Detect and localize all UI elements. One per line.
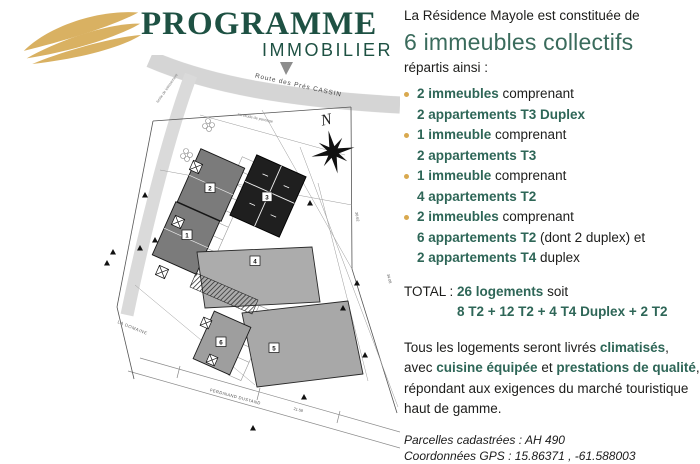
- list-item: 2 appartements T3 Duplex: [404, 105, 696, 126]
- text-segment: 2 appartements T3: [417, 148, 536, 163]
- total-line: TOTAL : 26 logements soit: [404, 282, 696, 302]
- list-item: 2 immeubles comprenant: [404, 84, 696, 105]
- text-segment: (dont 2 duplex) et: [536, 230, 645, 245]
- dimension-label-2: 21.58: [293, 407, 303, 413]
- list-item: 6 appartements T2 (dont 2 duplex) et: [404, 228, 696, 249]
- svg-text:5: 5: [272, 345, 276, 352]
- total-suffix: soit: [547, 284, 568, 299]
- buildings-list: 2 immeubles comprenant2 appartements T3 …: [404, 84, 696, 269]
- bullet-icon: [404, 215, 409, 220]
- bullet-icon: [404, 92, 409, 97]
- gps-line: Coordonnées GPS : 15.86371 , -61.588003: [404, 448, 696, 464]
- text-segment: 1 immeuble: [417, 168, 491, 183]
- building-tag-3: 3: [262, 192, 272, 202]
- text-segment: climatisés: [600, 340, 665, 355]
- building-tag-1: 1: [182, 230, 192, 240]
- svg-text:4: 4: [253, 258, 257, 265]
- paragraph-line: haut de gamme.: [404, 399, 696, 420]
- text-segment: comprenant: [499, 209, 574, 224]
- text-segment: cuisine équipée: [436, 360, 537, 375]
- total-count: 26 logements: [457, 284, 543, 299]
- list-item: 4 appartements T2: [404, 187, 696, 208]
- text-segment: duplex: [536, 250, 580, 265]
- paragraph-line: répondant aux exigences du marché touris…: [404, 379, 696, 400]
- text-segment: 2 appartements T3 Duplex: [417, 107, 585, 122]
- paragraph-line: avec cuisine équipée et prestations de q…: [404, 358, 696, 379]
- text-segment: et: [538, 360, 557, 375]
- total-label: TOTAL :: [404, 284, 453, 299]
- repartition-line: répartis ainsi :: [404, 58, 696, 78]
- text-segment: 2 appartements T4: [417, 250, 536, 265]
- bullet-icon: [404, 174, 409, 179]
- list-item: 2 immeubles comprenant: [404, 207, 696, 228]
- text-segment: 4 appartements T2: [417, 189, 536, 204]
- text-segment: avec: [404, 360, 436, 375]
- compass-rose: N: [301, 107, 362, 181]
- text-segment: ,: [665, 340, 669, 355]
- dimension-label-3: 30.62: [354, 212, 360, 222]
- text-segment: ,: [696, 360, 700, 375]
- text-segment: prestations de qualité: [556, 360, 696, 375]
- paragraph-line: Tous les logements seront livrés climati…: [404, 338, 696, 359]
- svg-text:6: 6: [219, 339, 223, 346]
- svg-text:2: 2: [208, 185, 212, 192]
- text-segment: Tous les logements seront livrés: [404, 340, 600, 355]
- list-item: 1 immeuble comprenant: [404, 125, 696, 146]
- brand-header: PROGRAMME IMMOBILIER: [0, 0, 400, 62]
- total-detail: 8 T2 + 12 T2 + 4 T4 Duplex + 2 T2: [457, 302, 696, 322]
- text-segment: répondant aux exigences du marché touris…: [404, 381, 688, 396]
- site-plan: N 1 2 3 4 5 6 Route des Prés CASSIN FERD…: [0, 55, 400, 455]
- north-label: N: [318, 111, 334, 130]
- road-island: [280, 62, 293, 75]
- text-segment: haut de gamme.: [404, 401, 502, 416]
- list-item: 2 appartements T4 duplex: [404, 248, 696, 269]
- svg-text:1: 1: [185, 232, 189, 239]
- text-segment: 2 immeubles: [417, 209, 499, 224]
- footnote: Parcelles cadastrées : AH 490 Coordonnée…: [404, 432, 696, 464]
- building-tag-2: 2: [205, 183, 215, 193]
- bullet-icon: [404, 133, 409, 138]
- text-segment: comprenant: [491, 168, 566, 183]
- list-item: 1 immeuble comprenant: [404, 166, 696, 187]
- description-column: La Résidence Mayole est constituée de 6 …: [404, 6, 696, 464]
- headline: 6 immeubles collectifs: [404, 28, 696, 56]
- quality-paragraph: Tous les logements seront livrés climati…: [404, 338, 696, 420]
- svg-text:3: 3: [265, 194, 269, 201]
- intro-line: La Résidence Mayole est constituée de: [404, 6, 696, 26]
- text-segment: 1 immeuble: [417, 127, 491, 142]
- cadastre-line: Parcelles cadastrées : AH 490: [404, 432, 696, 448]
- building-tag-4: 4: [250, 256, 260, 266]
- list-item: 2 appartements T3: [404, 146, 696, 167]
- text-segment: comprenant: [491, 127, 566, 142]
- building-tag-6: 6: [216, 337, 226, 347]
- building-5: [242, 301, 363, 387]
- brand-title: PROGRAMME: [141, 6, 397, 43]
- building-tag-5: 5: [269, 343, 279, 353]
- text-segment: comprenant: [499, 86, 574, 101]
- text-segment: 2 immeubles: [417, 86, 499, 101]
- text-segment: 6 appartements T2: [417, 230, 536, 245]
- dimension-label-1: 34.08: [386, 274, 392, 284]
